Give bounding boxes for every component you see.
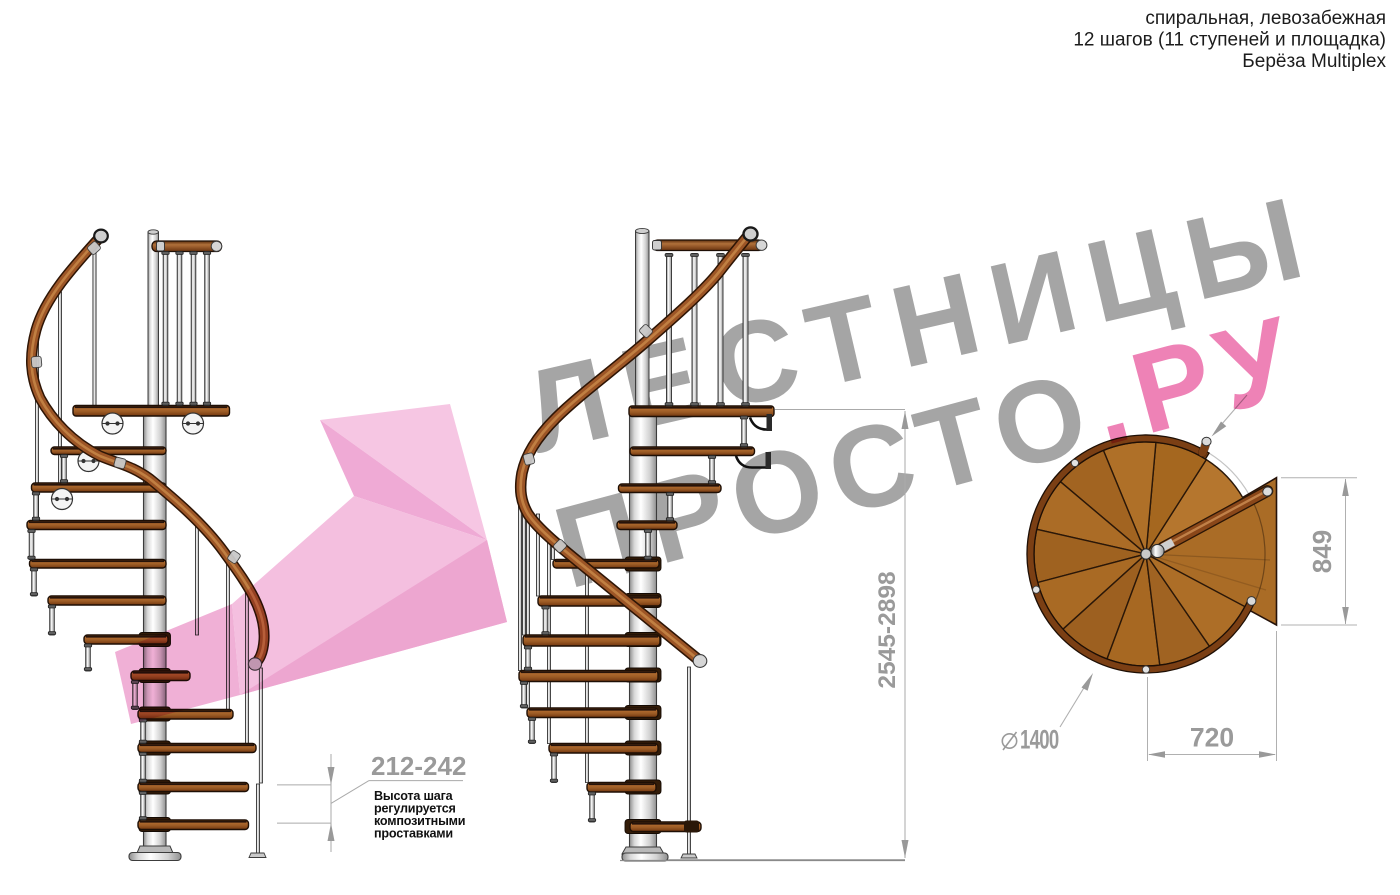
svg-text:212-242: 212-242 (371, 751, 466, 781)
svg-text:2545-2898: 2545-2898 (874, 571, 901, 688)
svg-text:720: 720 (1190, 723, 1234, 753)
svg-text:849: 849 (1307, 530, 1337, 573)
svg-text:спиральная, левозабежная: спиральная, левозабежная (1145, 8, 1386, 29)
svg-text:проставками: проставками (374, 827, 453, 841)
svg-text:1400: 1400 (1020, 724, 1059, 754)
svg-text:Берёза Multiplex: Берёза Multiplex (1242, 51, 1386, 72)
svg-text:12 шагов (11 ступеней и площад: 12 шагов (11 ступеней и площадка) (1073, 30, 1386, 51)
